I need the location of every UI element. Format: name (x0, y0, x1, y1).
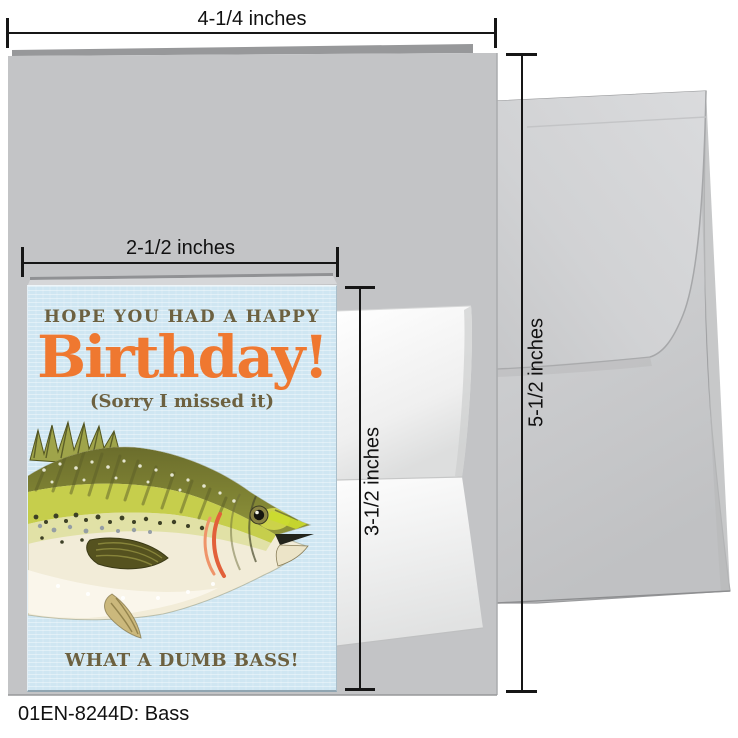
dim-line (359, 287, 361, 690)
fish-mouth (275, 534, 314, 566)
card-title: Birthday! (28, 326, 336, 388)
card-punchline: WHAT A DUMB BASS! (28, 650, 336, 671)
product-mockup: HOPE YOU HAD A HAPPY Birthday! (Sorry I … (0, 0, 738, 738)
card-subtitle: (Sorry I missed it) (28, 391, 336, 412)
dim-open-card-width-label: 4-1/4 inches (7, 8, 497, 31)
fish-eye (250, 506, 268, 524)
dim-line (22, 262, 339, 264)
dim-tick (506, 53, 537, 56)
dim-folded-card-width-label: 2-1/2 inches (22, 237, 339, 260)
dim-envelope-height-label: 5-1/2 inches (526, 313, 549, 433)
dim-tick (336, 247, 339, 277)
dim-line (521, 55, 523, 692)
dim-tick (345, 688, 375, 691)
dim-folded-card-height-label: 3-1/2 inches (362, 422, 385, 542)
dim-line (7, 32, 497, 34)
dim-tick (506, 690, 537, 693)
dim-tick (494, 18, 497, 48)
bass-fish-illustration (28, 418, 337, 653)
sku-label: 01EN-8244D: Bass (18, 703, 189, 726)
card-front: HOPE YOU HAD A HAPPY Birthday! (Sorry I … (27, 285, 337, 692)
dim-tick (345, 286, 375, 289)
dim-tick (21, 247, 24, 277)
dim-tick (6, 18, 9, 48)
